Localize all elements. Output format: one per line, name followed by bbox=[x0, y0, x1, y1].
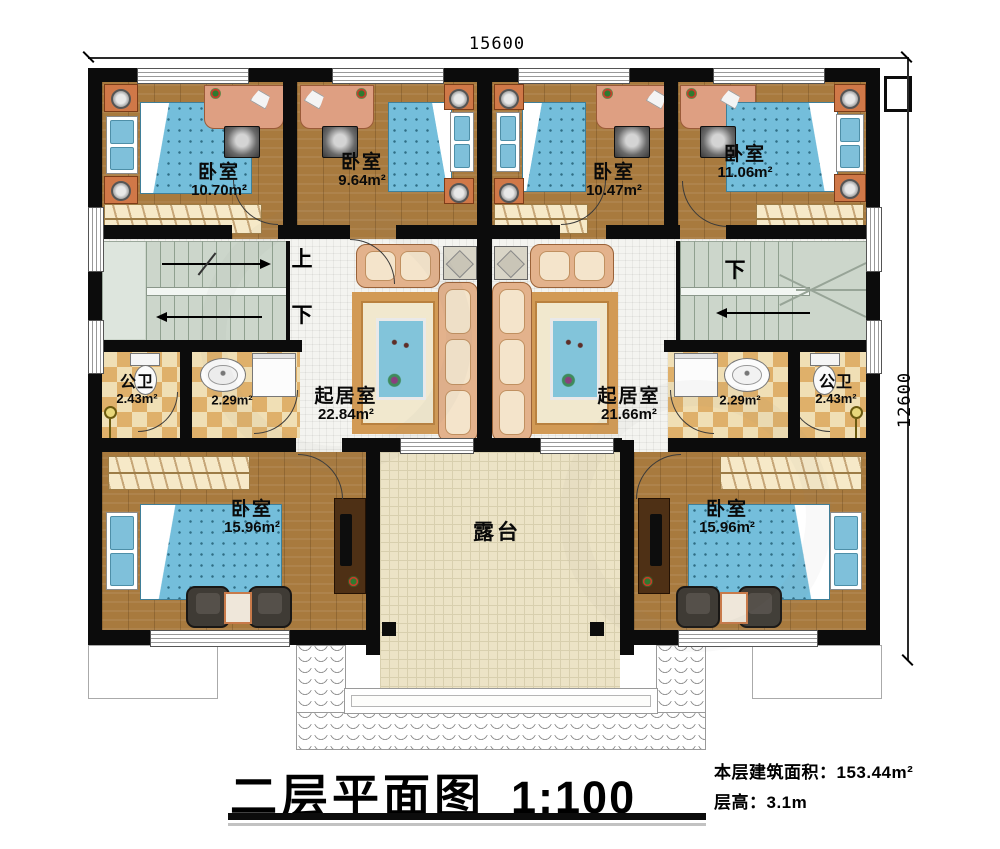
bed-headboard bbox=[830, 512, 862, 590]
lamp-table bbox=[443, 246, 477, 280]
bed-headboard bbox=[106, 512, 138, 590]
label-bedroom-bottom-right: 卧室15.96m² bbox=[699, 499, 755, 537]
stair-arrow-line bbox=[162, 263, 262, 265]
label-wash-left: 2.29m² bbox=[211, 394, 252, 409]
computer-monitor bbox=[224, 126, 260, 158]
sofa-column bbox=[492, 282, 532, 442]
wall bbox=[726, 225, 880, 239]
floor-area-text: 本层建筑面积：153.44m² bbox=[714, 758, 913, 783]
wall bbox=[366, 440, 380, 655]
wall bbox=[472, 438, 540, 452]
sofa-column bbox=[438, 282, 478, 442]
terrace-post bbox=[382, 622, 396, 636]
floor-height-text: 层高：3.1m bbox=[714, 788, 807, 813]
plant bbox=[602, 88, 613, 99]
label-bath-right: 公卫2.43m² bbox=[815, 374, 856, 406]
stair-arrow bbox=[260, 259, 271, 269]
wardrobe bbox=[720, 456, 862, 490]
window bbox=[332, 68, 444, 84]
wall bbox=[816, 630, 880, 645]
nightstand bbox=[834, 84, 866, 112]
bed-headboard bbox=[450, 112, 474, 172]
title-underline bbox=[228, 813, 706, 820]
terrace-door-window bbox=[400, 438, 474, 454]
wall bbox=[88, 630, 150, 645]
bed-headboard bbox=[496, 112, 520, 172]
terrace-post bbox=[590, 622, 604, 636]
window bbox=[866, 320, 882, 374]
label-bath-left: 公卫2.43m² bbox=[116, 374, 157, 406]
computer-monitor bbox=[614, 126, 650, 158]
wall bbox=[606, 225, 680, 239]
bed-mattress bbox=[388, 102, 452, 192]
wall bbox=[88, 340, 302, 352]
dimension-line-top bbox=[88, 57, 908, 59]
label-wash-right: 2.29m² bbox=[719, 394, 760, 409]
label-bedroom-bottom-left: 卧室15.96m² bbox=[224, 499, 280, 537]
wall bbox=[477, 68, 492, 452]
dimension-line-right bbox=[907, 57, 909, 660]
tv bbox=[340, 514, 352, 566]
loveseat-sofa bbox=[530, 244, 614, 288]
eave-outline bbox=[752, 645, 882, 699]
window bbox=[866, 207, 882, 272]
bed-headboard bbox=[106, 116, 138, 174]
staircase-left-rail bbox=[146, 287, 288, 296]
nightstand bbox=[834, 174, 866, 202]
washbasin bbox=[200, 358, 246, 392]
label-bedroom-top-right: 卧室11.06m² bbox=[717, 144, 772, 182]
wall bbox=[288, 630, 380, 645]
stair-down-label-right: 下 bbox=[725, 254, 746, 284]
plant bbox=[356, 88, 367, 99]
window bbox=[137, 68, 249, 84]
plant bbox=[210, 88, 221, 99]
label-living-left: 起居室22.84m² bbox=[314, 386, 377, 424]
floor-terrace bbox=[380, 452, 620, 688]
bed-headboard bbox=[836, 114, 864, 172]
stair-arrow bbox=[156, 312, 167, 322]
stair-rail-wall bbox=[676, 241, 680, 340]
bed-mattress bbox=[522, 102, 586, 192]
wall bbox=[396, 225, 560, 239]
nightstand bbox=[104, 176, 138, 204]
tv bbox=[650, 514, 662, 566]
label-bedroom-top-midleft: 卧室9.64m² bbox=[338, 152, 386, 190]
window bbox=[518, 68, 630, 84]
dimension-width: 15600 bbox=[469, 34, 525, 54]
window bbox=[713, 68, 825, 84]
plant bbox=[686, 88, 697, 99]
wall bbox=[664, 340, 880, 352]
chair bbox=[248, 586, 292, 628]
chair bbox=[676, 586, 720, 628]
terrace-door-window bbox=[540, 438, 614, 454]
stair-down-label: 下 bbox=[292, 299, 313, 329]
stair-up-label: 上 bbox=[292, 243, 313, 273]
wall bbox=[668, 438, 880, 452]
nightstand bbox=[104, 84, 138, 112]
label-terrace: 露台 bbox=[473, 521, 521, 545]
stair-arrow bbox=[716, 308, 727, 318]
plant bbox=[348, 576, 359, 587]
wall bbox=[620, 630, 678, 645]
stair-arrow-line bbox=[162, 316, 262, 318]
stair-winder-line bbox=[796, 289, 866, 291]
plant bbox=[642, 576, 653, 587]
side-table bbox=[720, 592, 748, 624]
washbasin bbox=[724, 358, 770, 392]
wardrobe bbox=[108, 456, 250, 490]
roof-tiles-bottom bbox=[296, 712, 706, 750]
stair-arrow-line bbox=[722, 312, 810, 314]
label-bedroom-top-left: 卧室10.70m² bbox=[191, 162, 247, 200]
side-table bbox=[224, 592, 252, 624]
lamp-table bbox=[494, 246, 528, 280]
eave-outline bbox=[88, 645, 218, 699]
wall bbox=[180, 352, 192, 438]
nightstand bbox=[494, 84, 524, 110]
window bbox=[88, 320, 104, 374]
dimension-height: 12600 bbox=[895, 372, 915, 428]
floor-plan-drawing: 卧室10.70m² 卧室9.64m² 卧室10.47m² 卧室11.06m² 公… bbox=[0, 0, 1000, 849]
window bbox=[678, 630, 818, 647]
staircase-right-rail bbox=[680, 287, 810, 296]
label-living-right: 起居室21.66m² bbox=[597, 386, 660, 424]
wall bbox=[88, 438, 296, 452]
label-bedroom-top-midright: 卧室10.47m² bbox=[586, 162, 642, 200]
wall bbox=[788, 352, 800, 438]
window bbox=[88, 207, 104, 272]
staircase-left-landing bbox=[103, 242, 145, 339]
wall bbox=[88, 225, 232, 239]
nightstand bbox=[444, 84, 474, 110]
terrace-step bbox=[344, 688, 658, 714]
wall bbox=[620, 440, 634, 655]
title-underline-shadow bbox=[228, 823, 706, 826]
rug bbox=[550, 318, 600, 400]
nightstand bbox=[494, 178, 524, 204]
window bbox=[150, 630, 290, 647]
wall bbox=[664, 82, 678, 239]
stair-rail-wall bbox=[286, 241, 290, 340]
nightstand bbox=[444, 178, 474, 204]
rug bbox=[376, 318, 426, 400]
wall bbox=[283, 82, 297, 239]
wall bbox=[278, 225, 350, 239]
